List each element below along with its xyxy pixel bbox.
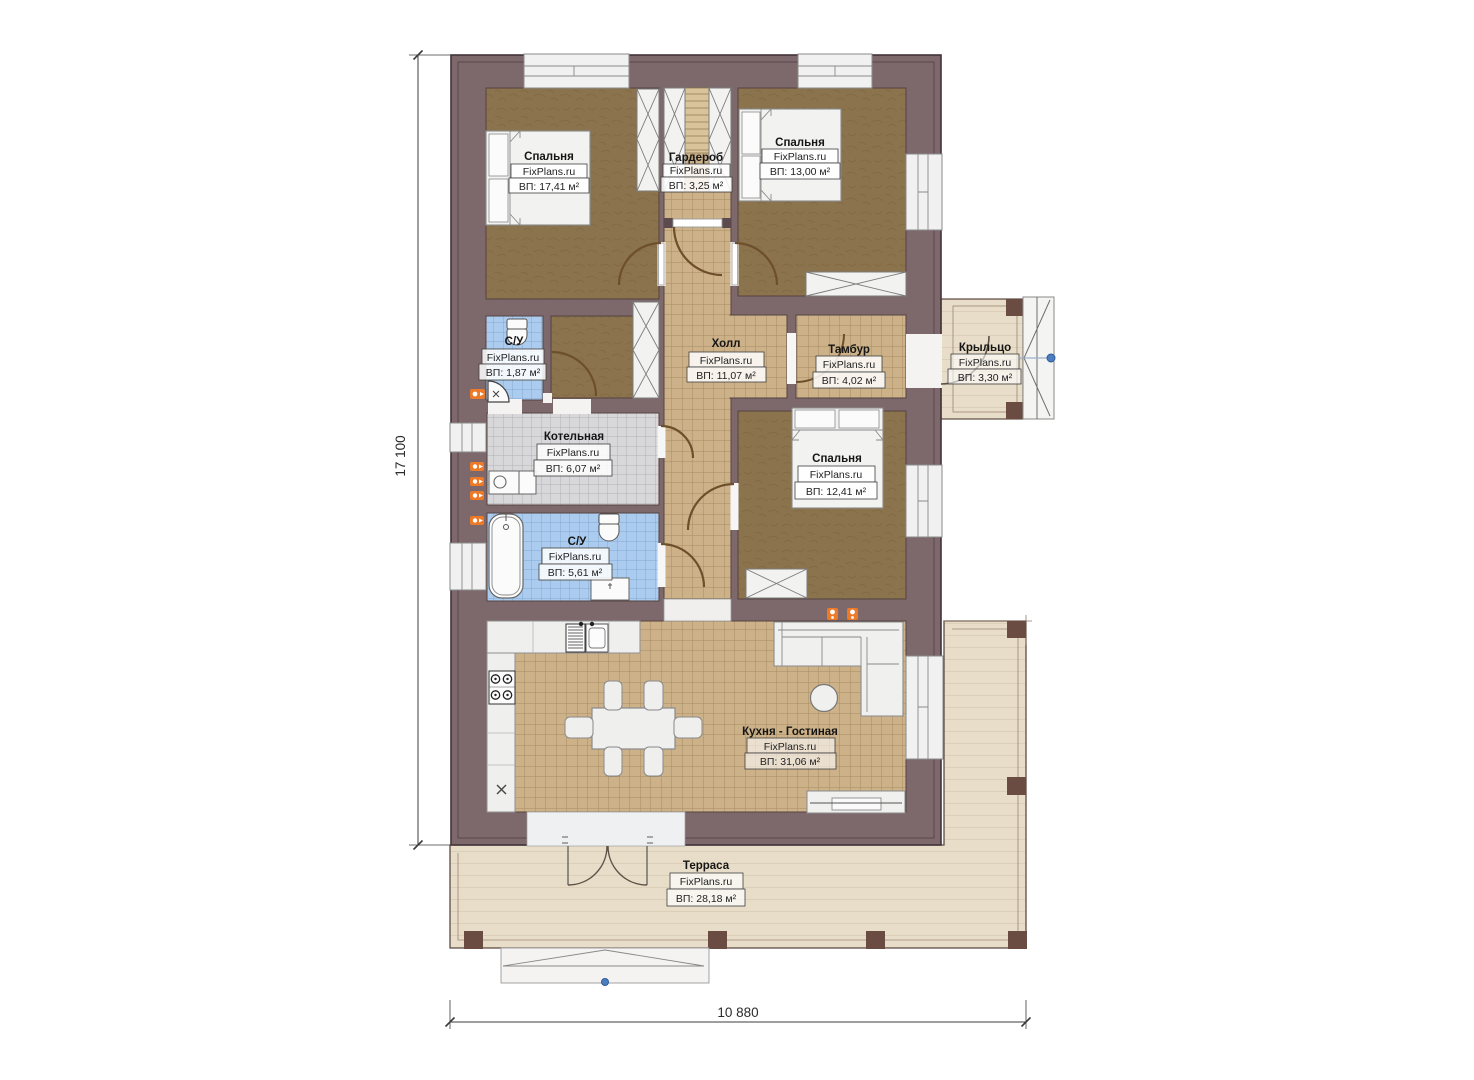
svg-text:FixPlans.ru: FixPlans.ru: [670, 165, 723, 177]
svg-text:10 880: 10 880: [717, 1005, 758, 1020]
svg-text:ВП: 6,07 м²: ВП: 6,07 м²: [546, 463, 601, 475]
svg-text:FixPlans.ru: FixPlans.ru: [959, 357, 1012, 369]
svg-text:ВП: 17,41 м²: ВП: 17,41 м²: [519, 181, 580, 193]
svg-text:Котельная: Котельная: [544, 431, 604, 443]
svg-text:Гардероб: Гардероб: [669, 152, 723, 164]
svg-text:ВП: 13,00 м²: ВП: 13,00 м²: [770, 166, 831, 178]
svg-text:Спальня: Спальня: [524, 151, 574, 163]
svg-text:FixPlans.ru: FixPlans.ru: [764, 741, 817, 753]
svg-text:ВП: 11,07 м²: ВП: 11,07 м²: [696, 370, 756, 382]
svg-text:FixPlans.ru: FixPlans.ru: [823, 359, 876, 371]
svg-text:FixPlans.ru: FixPlans.ru: [547, 447, 600, 459]
svg-text:Спальня: Спальня: [812, 453, 862, 465]
svg-text:FixPlans.ru: FixPlans.ru: [523, 166, 576, 178]
svg-text:ВП: 31,06 м²: ВП: 31,06 м²: [760, 756, 821, 768]
svg-text:FixPlans.ru: FixPlans.ru: [700, 355, 753, 367]
svg-text:ВП: 28,18 м²: ВП: 28,18 м²: [676, 893, 737, 905]
svg-text:Крыльцо: Крыльцо: [959, 342, 1011, 354]
svg-text:ВП: 5,61 м²: ВП: 5,61 м²: [548, 567, 603, 579]
svg-text:FixPlans.ru: FixPlans.ru: [549, 551, 602, 563]
svg-text:ВП: 3,30 м²: ВП: 3,30 м²: [958, 372, 1013, 384]
svg-text:Спальня: Спальня: [775, 137, 825, 149]
svg-text:Холл: Холл: [712, 338, 741, 350]
svg-text:17 100: 17 100: [393, 435, 408, 476]
svg-text:FixPlans.ru: FixPlans.ru: [774, 151, 827, 163]
svg-text:ВП: 3,25 м²: ВП: 3,25 м²: [669, 180, 724, 192]
svg-text:ВП: 4,02 м²: ВП: 4,02 м²: [822, 375, 877, 387]
svg-text:С/У: С/У: [568, 536, 588, 548]
svg-text:ВП: 1,87 м²: ВП: 1,87 м²: [486, 367, 541, 379]
svg-text:FixPlans.ru: FixPlans.ru: [810, 469, 863, 481]
svg-text:ВП: 12,41 м²: ВП: 12,41 м²: [806, 486, 867, 498]
svg-text:Тамбур: Тамбур: [828, 344, 870, 356]
svg-text:Терраса: Терраса: [683, 860, 730, 872]
svg-text:Кухня - Гостиная: Кухня - Гостиная: [742, 726, 838, 738]
svg-text:FixPlans.ru: FixPlans.ru: [680, 876, 733, 888]
svg-text:FixPlans.ru: FixPlans.ru: [487, 352, 540, 364]
svg-text:С/У: С/У: [505, 336, 525, 348]
